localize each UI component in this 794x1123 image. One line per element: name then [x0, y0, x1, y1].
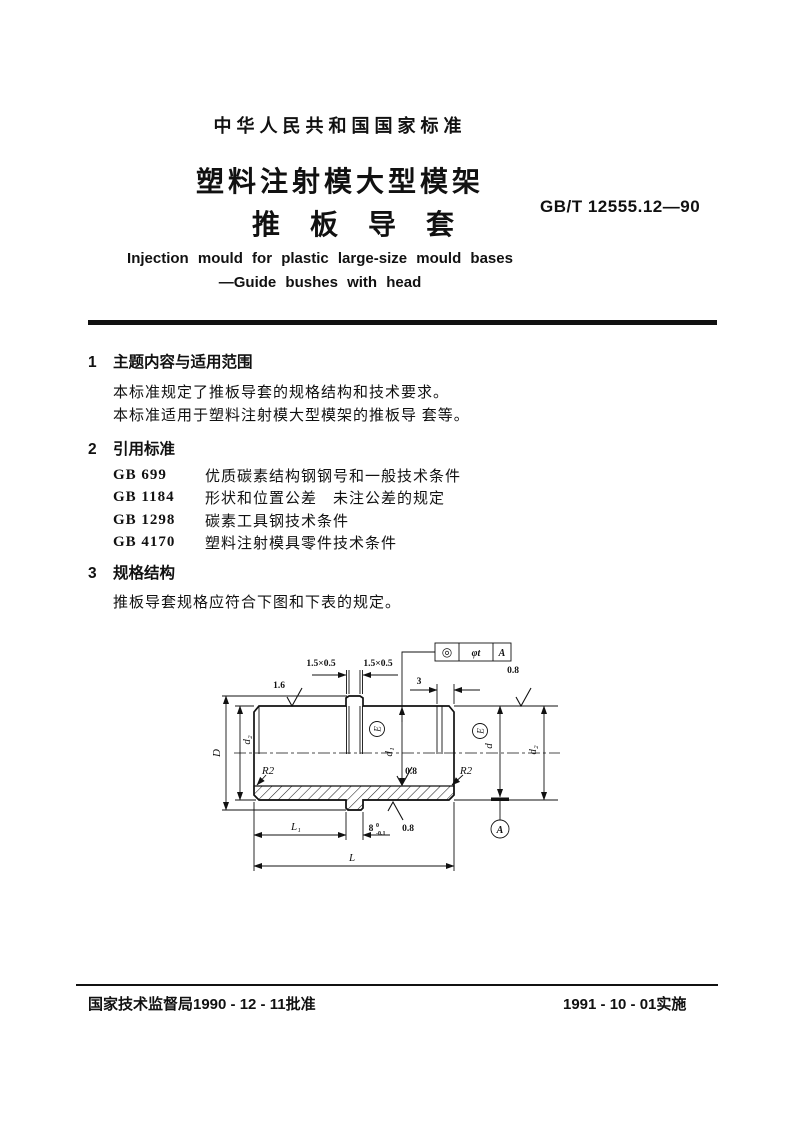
reference-item: GB 1298 碳素工具钢技术条件 — [113, 509, 461, 532]
surface-finish-0-8-bore: 0.8 — [397, 767, 417, 785]
standard-number: GB/T 12555.12—90 — [540, 197, 700, 217]
dim-8-label: 8 — [369, 824, 374, 834]
reference-title: 碳素工具钢技术条件 — [205, 510, 349, 531]
finish-0-8-label: 0.8 — [402, 824, 414, 834]
dim-L1: L₁ — [254, 802, 346, 871]
section-1-paragraph-2: 本标准适用于塑料注射模大型模架的推板导 套等。 — [113, 404, 470, 425]
section-2-title: 引用标准 — [113, 441, 175, 458]
reference-item: GB 4170 塑料注射模具零件技术条件 — [113, 532, 461, 555]
reference-item: GB 1184 形状和位置公差 未注公差的规定 — [113, 487, 461, 510]
finish-1-6-label: 1.6 — [273, 681, 285, 691]
radius-callout-right: R2 — [452, 765, 473, 785]
dim-8-tol-upper: 0 — [376, 823, 379, 829]
title-chinese-line1: 塑料注射模大型模架 — [60, 160, 620, 200]
radius-label: R2 — [459, 765, 473, 777]
national-standard-header: 中华人民共和国国家标准 — [60, 112, 620, 138]
section-2-number: 2 — [88, 441, 113, 459]
dim-d2-right-label: d₂ — [527, 745, 539, 755]
section-1-heading: 1主题内容与适用范围 — [88, 350, 253, 372]
reference-code: GB 4170 — [113, 534, 205, 551]
fit-mark-label: E — [476, 728, 486, 735]
fcf-datum-ref: A — [498, 648, 506, 659]
radius-callout-left: R2 — [257, 765, 275, 785]
title-english-line1: Injection mould for plastic large-size m… — [0, 250, 640, 267]
footer-approval: 国家技术监督局1990 - 12 - 11批准 — [88, 993, 316, 1014]
dim-d2-left-label: d₂ — [241, 735, 253, 745]
radius-label: R2 — [261, 765, 275, 777]
section-1-number: 1 — [88, 354, 113, 372]
dim-L1-label: L₁ — [290, 821, 301, 833]
title-english-line2: —Guide bushes with head — [0, 274, 640, 291]
section-1-paragraph-1: 本标准规定了推板导套的规格结构和技术要求。 — [113, 381, 449, 402]
reference-code: GB 1298 — [113, 512, 205, 529]
section-3-paragraph-1: 推板导套规格应符合下图和下表的规定。 — [113, 591, 401, 612]
reference-item: GB 699 优质碳素结构钢钢号和一般技术条件 — [113, 464, 461, 487]
dim-L: L — [254, 802, 454, 871]
reference-title: 塑料注射模具零件技术条件 — [205, 532, 397, 553]
reference-code: GB 1184 — [113, 489, 205, 506]
section-3-title: 规格结构 — [113, 565, 175, 582]
section-hatch — [254, 786, 454, 810]
dim-d: d — [483, 706, 500, 797]
datum-label: A — [496, 825, 504, 836]
finish-0-8-label: 0.8 — [405, 767, 417, 777]
surface-finish-0-8-bottom: 0.8 — [388, 802, 414, 834]
chamfer-label-left: 1.5×0.5 — [306, 659, 335, 669]
surface-finish-1-6: 1.6 — [273, 681, 302, 706]
reference-title: 形状和位置公差 未注公差的规定 — [205, 487, 445, 508]
dim-3-label: 3 — [417, 677, 422, 687]
fit-mark-label: E — [373, 726, 383, 733]
section-3-heading: 3规格结构 — [88, 561, 175, 583]
concentricity-icon: ◎ — [442, 645, 452, 659]
dim-8: 8 0 -0.1 — [363, 812, 390, 840]
technical-drawing: ◎ φt A d₁ 1.5×0.5 1.5×0.5 1.6 — [212, 628, 582, 898]
dim-d-label: d — [483, 743, 495, 749]
reference-code: GB 699 — [113, 467, 205, 484]
section-3-number: 3 — [88, 565, 113, 583]
finish-0-8-label: 0.8 — [507, 666, 519, 676]
dim-D-label: D — [212, 749, 223, 758]
footer-implementation: 1991 - 10 - 01实施 — [563, 993, 686, 1014]
reference-list: GB 699 优质碳素结构钢钢号和一般技术条件 GB 1184 形状和位置公差 … — [113, 464, 461, 554]
standard-document-page: 中华人民共和国国家标准 塑料注射模大型模架 推板导套 GB/T 12555.12… — [0, 0, 794, 1123]
dim-L-label: L — [348, 852, 355, 864]
chamfer-label-right: 1.5×0.5 — [363, 659, 392, 669]
feature-control-frame: ◎ φt A — [402, 643, 511, 705]
surface-finish-0-8-top: 0.8 — [507, 666, 531, 706]
section-1-title: 主题内容与适用范围 — [113, 354, 253, 371]
chamfer-callouts: 1.5×0.5 1.5×0.5 — [306, 659, 398, 694]
header-divider-bar — [88, 320, 717, 325]
fit-mark-center: E — [370, 722, 385, 737]
fit-mark-right: E — [473, 724, 488, 739]
reference-title: 优质碳素结构钢钢号和一般技术条件 — [205, 465, 461, 486]
dim-8-tol-lower: -0.1 — [376, 831, 386, 837]
footer-divider-rule — [76, 984, 718, 986]
fcf-tolerance-value: φt — [472, 648, 482, 659]
dim-d1-label: d₁ — [383, 747, 395, 757]
datum-target-A: A — [491, 798, 509, 839]
dim-d2-right: d₂ — [527, 706, 544, 800]
dim-3: 3 — [410, 677, 480, 704]
section-2-heading: 2引用标准 — [88, 437, 175, 459]
